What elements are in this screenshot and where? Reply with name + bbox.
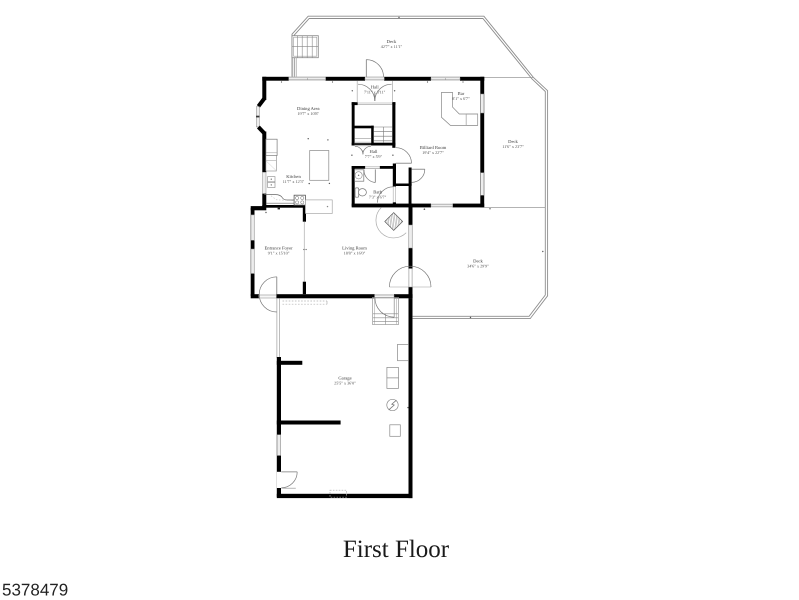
svg-text:First Floor: First Floor [343,536,450,563]
svg-text:19'4" x 22'7": 19'4" x 22'7" [422,150,444,155]
svg-text:19'7" x 10'8": 19'7" x 10'8" [297,111,319,116]
svg-text:34'6" x 29'9": 34'6" x 29'9" [467,264,489,269]
svg-text:11'6" x 23'7": 11'6" x 23'7" [502,144,524,149]
svg-text:42'7" x 11'1": 42'7" x 11'1" [381,44,403,49]
svg-text:7'7" x 5'9": 7'7" x 5'9" [365,154,383,159]
svg-text:18'8" x 16'0": 18'8" x 16'0" [344,250,366,255]
svg-text:7'3" x 6'7": 7'3" x 6'7" [369,194,387,199]
svg-text:8'1" x 6'7": 8'1" x 6'7" [452,96,470,101]
svg-text:25'5" x 36'0": 25'5" x 36'0" [334,381,356,386]
svg-text:9'1" x 15'10": 9'1" x 15'10" [268,250,290,255]
svg-text:5378479: 5378479 [2,580,68,599]
svg-text:11'7" x 12'3": 11'7" x 12'3" [283,179,305,184]
svg-text:7'11" x 3'11": 7'11" x 3'11" [364,89,386,94]
